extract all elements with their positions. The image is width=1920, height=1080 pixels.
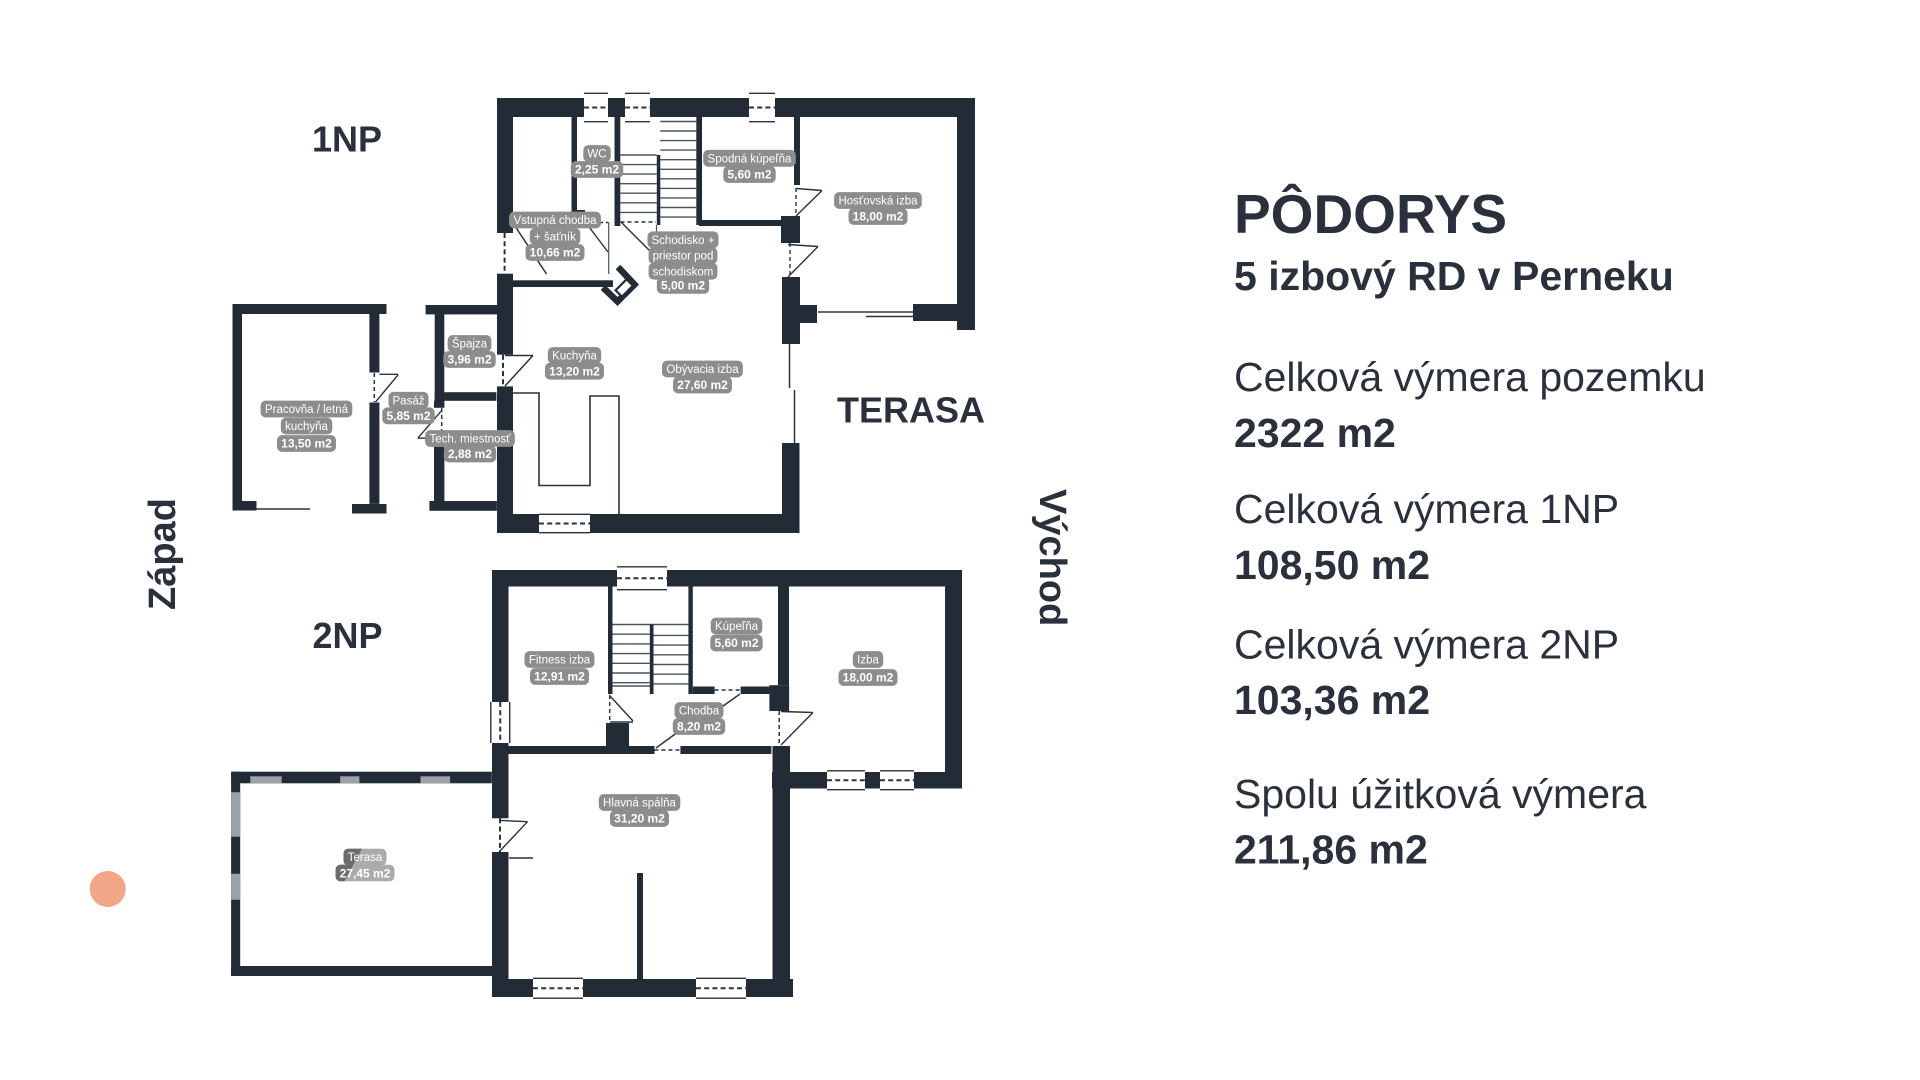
svg-text:5,85 m2: 5,85 m2 (386, 409, 430, 423)
svg-text:3,96 m2: 3,96 m2 (447, 353, 491, 367)
svg-text:Obývacia izba: Obývacia izba (666, 364, 739, 376)
svg-text:Schodisko +: Schodisko + (652, 235, 715, 247)
svg-text:27,60 m2: 27,60 m2 (677, 378, 728, 392)
svg-text:Spodná kúpeľňa: Spodná kúpeľňa (708, 153, 793, 165)
svg-text:kuchyňa: kuchyňa (285, 421, 328, 433)
svg-text:PÔDORYS: PÔDORYS (1234, 183, 1507, 245)
svg-text:Spolu úžitková výmera: Spolu úžitková výmera (1234, 771, 1647, 817)
svg-text:10,66 m2: 10,66 m2 (530, 246, 581, 260)
svg-text:TERASA: TERASA (837, 390, 985, 431)
svg-text:12,91 m2: 12,91 m2 (534, 670, 585, 684)
svg-text:Celková výmera 2NP: Celková výmera 2NP (1234, 622, 1619, 668)
svg-text:2NP: 2NP (313, 615, 383, 656)
svg-text:Chodba: Chodba (679, 706, 720, 718)
svg-text:13,50 m2: 13,50 m2 (281, 437, 332, 451)
svg-text:Celková výmera pozemku: Celková výmera pozemku (1234, 354, 1706, 400)
svg-text:Celková výmera 1NP: Celková výmera 1NP (1234, 486, 1619, 532)
svg-text:+ šaťník: + šaťník (534, 232, 576, 244)
svg-text:18,00 m2: 18,00 m2 (843, 671, 894, 685)
svg-text:Izba: Izba (857, 655, 879, 667)
svg-text:schodiskom: schodiskom (653, 266, 714, 278)
svg-text:WC: WC (587, 149, 606, 161)
svg-text:Vstupná chodba: Vstupná chodba (513, 215, 597, 227)
svg-text:Terasa: Terasa (348, 852, 383, 864)
svg-text:31,20 m2: 31,20 m2 (614, 812, 665, 826)
svg-text:211,86 m2: 211,86 m2 (1234, 827, 1428, 873)
svg-text:Kúpeľňa: Kúpeľňa (715, 621, 759, 633)
svg-text:2322 m2: 2322 m2 (1234, 410, 1396, 456)
svg-text:Tech. miestnosť: Tech. miestnosť (429, 434, 511, 446)
svg-text:5,60 m2: 5,60 m2 (727, 168, 771, 182)
svg-text:Hlavná spálňa: Hlavná spálňa (603, 798, 676, 810)
svg-text:Fitness izba: Fitness izba (529, 655, 591, 667)
svg-text:Kuchyňa: Kuchyňa (552, 351, 597, 363)
svg-text:Východ: Východ (1031, 489, 1073, 626)
svg-text:2,88 m2: 2,88 m2 (448, 447, 492, 461)
svg-text:108,50 m2: 108,50 m2 (1234, 542, 1430, 588)
svg-text:103,36 m2: 103,36 m2 (1234, 677, 1430, 723)
svg-text:Hosťovská izba: Hosťovská izba (838, 196, 918, 208)
svg-text:priestor pod: priestor pod (653, 251, 714, 263)
svg-text:5,00 m2: 5,00 m2 (661, 279, 705, 293)
svg-text:8,20 m2: 8,20 m2 (677, 720, 721, 734)
svg-text:27,45 m2: 27,45 m2 (340, 866, 391, 880)
svg-text:Špajza: Špajza (452, 338, 488, 351)
svg-text:18,00 m2: 18,00 m2 (853, 210, 904, 224)
svg-text:5,60 m2: 5,60 m2 (714, 636, 758, 650)
svg-text:13,20 m2: 13,20 m2 (549, 364, 600, 378)
svg-text:Západ: Západ (142, 498, 184, 610)
svg-text:2,25 m2: 2,25 m2 (575, 163, 619, 177)
svg-text:Pracovňa / letná: Pracovňa / letná (265, 404, 349, 416)
svg-text:5 izbový RD v Perneku: 5 izbový RD v Perneku (1234, 253, 1674, 299)
svg-text:1NP: 1NP (312, 119, 382, 160)
svg-text:Pasáž: Pasáž (393, 395, 425, 407)
